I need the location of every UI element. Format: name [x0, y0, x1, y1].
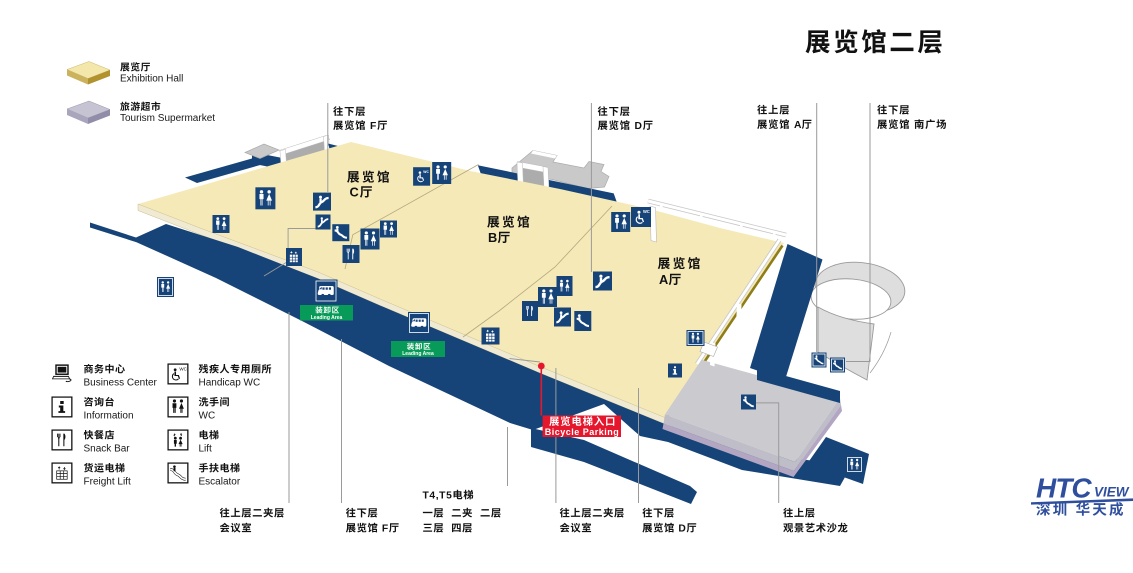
svg-text:Leading Area: Leading Area: [402, 351, 434, 357]
svg-text:Information: Information: [84, 411, 134, 422]
svg-text:A: A: [659, 272, 669, 287]
svg-text:Tourism Supermarket: Tourism Supermarket: [120, 113, 215, 124]
svg-text:F: F: [378, 524, 388, 535]
svg-text:Snack Bar: Snack Bar: [84, 444, 131, 455]
svg-text:Freight Lift: Freight Lift: [84, 477, 131, 488]
svg-text:D: D: [675, 524, 687, 535]
svg-text:HTC: HTC: [1036, 473, 1092, 504]
svg-text:Exhibition Hall: Exhibition Hall: [120, 74, 183, 85]
svg-text:Handicap WC: Handicap WC: [199, 378, 261, 389]
svg-text:WC: WC: [199, 411, 216, 422]
svg-text:B: B: [488, 230, 498, 245]
svg-text:Escalator: Escalator: [199, 477, 241, 488]
svg-text:F: F: [366, 121, 377, 132]
svg-text:C: C: [350, 185, 360, 200]
svg-text:Bicycle Parking: Bicycle Parking: [545, 427, 620, 437]
svg-text:A: A: [790, 120, 802, 131]
svg-text:D: D: [631, 121, 643, 132]
svg-text:Business Center: Business Center: [84, 378, 158, 389]
svg-text:T4,T5: T4,T5: [423, 491, 453, 502]
svg-text:Leading Area: Leading Area: [311, 315, 343, 321]
svg-text:Lift: Lift: [199, 444, 213, 455]
svg-text:VIEW: VIEW: [1094, 485, 1130, 500]
